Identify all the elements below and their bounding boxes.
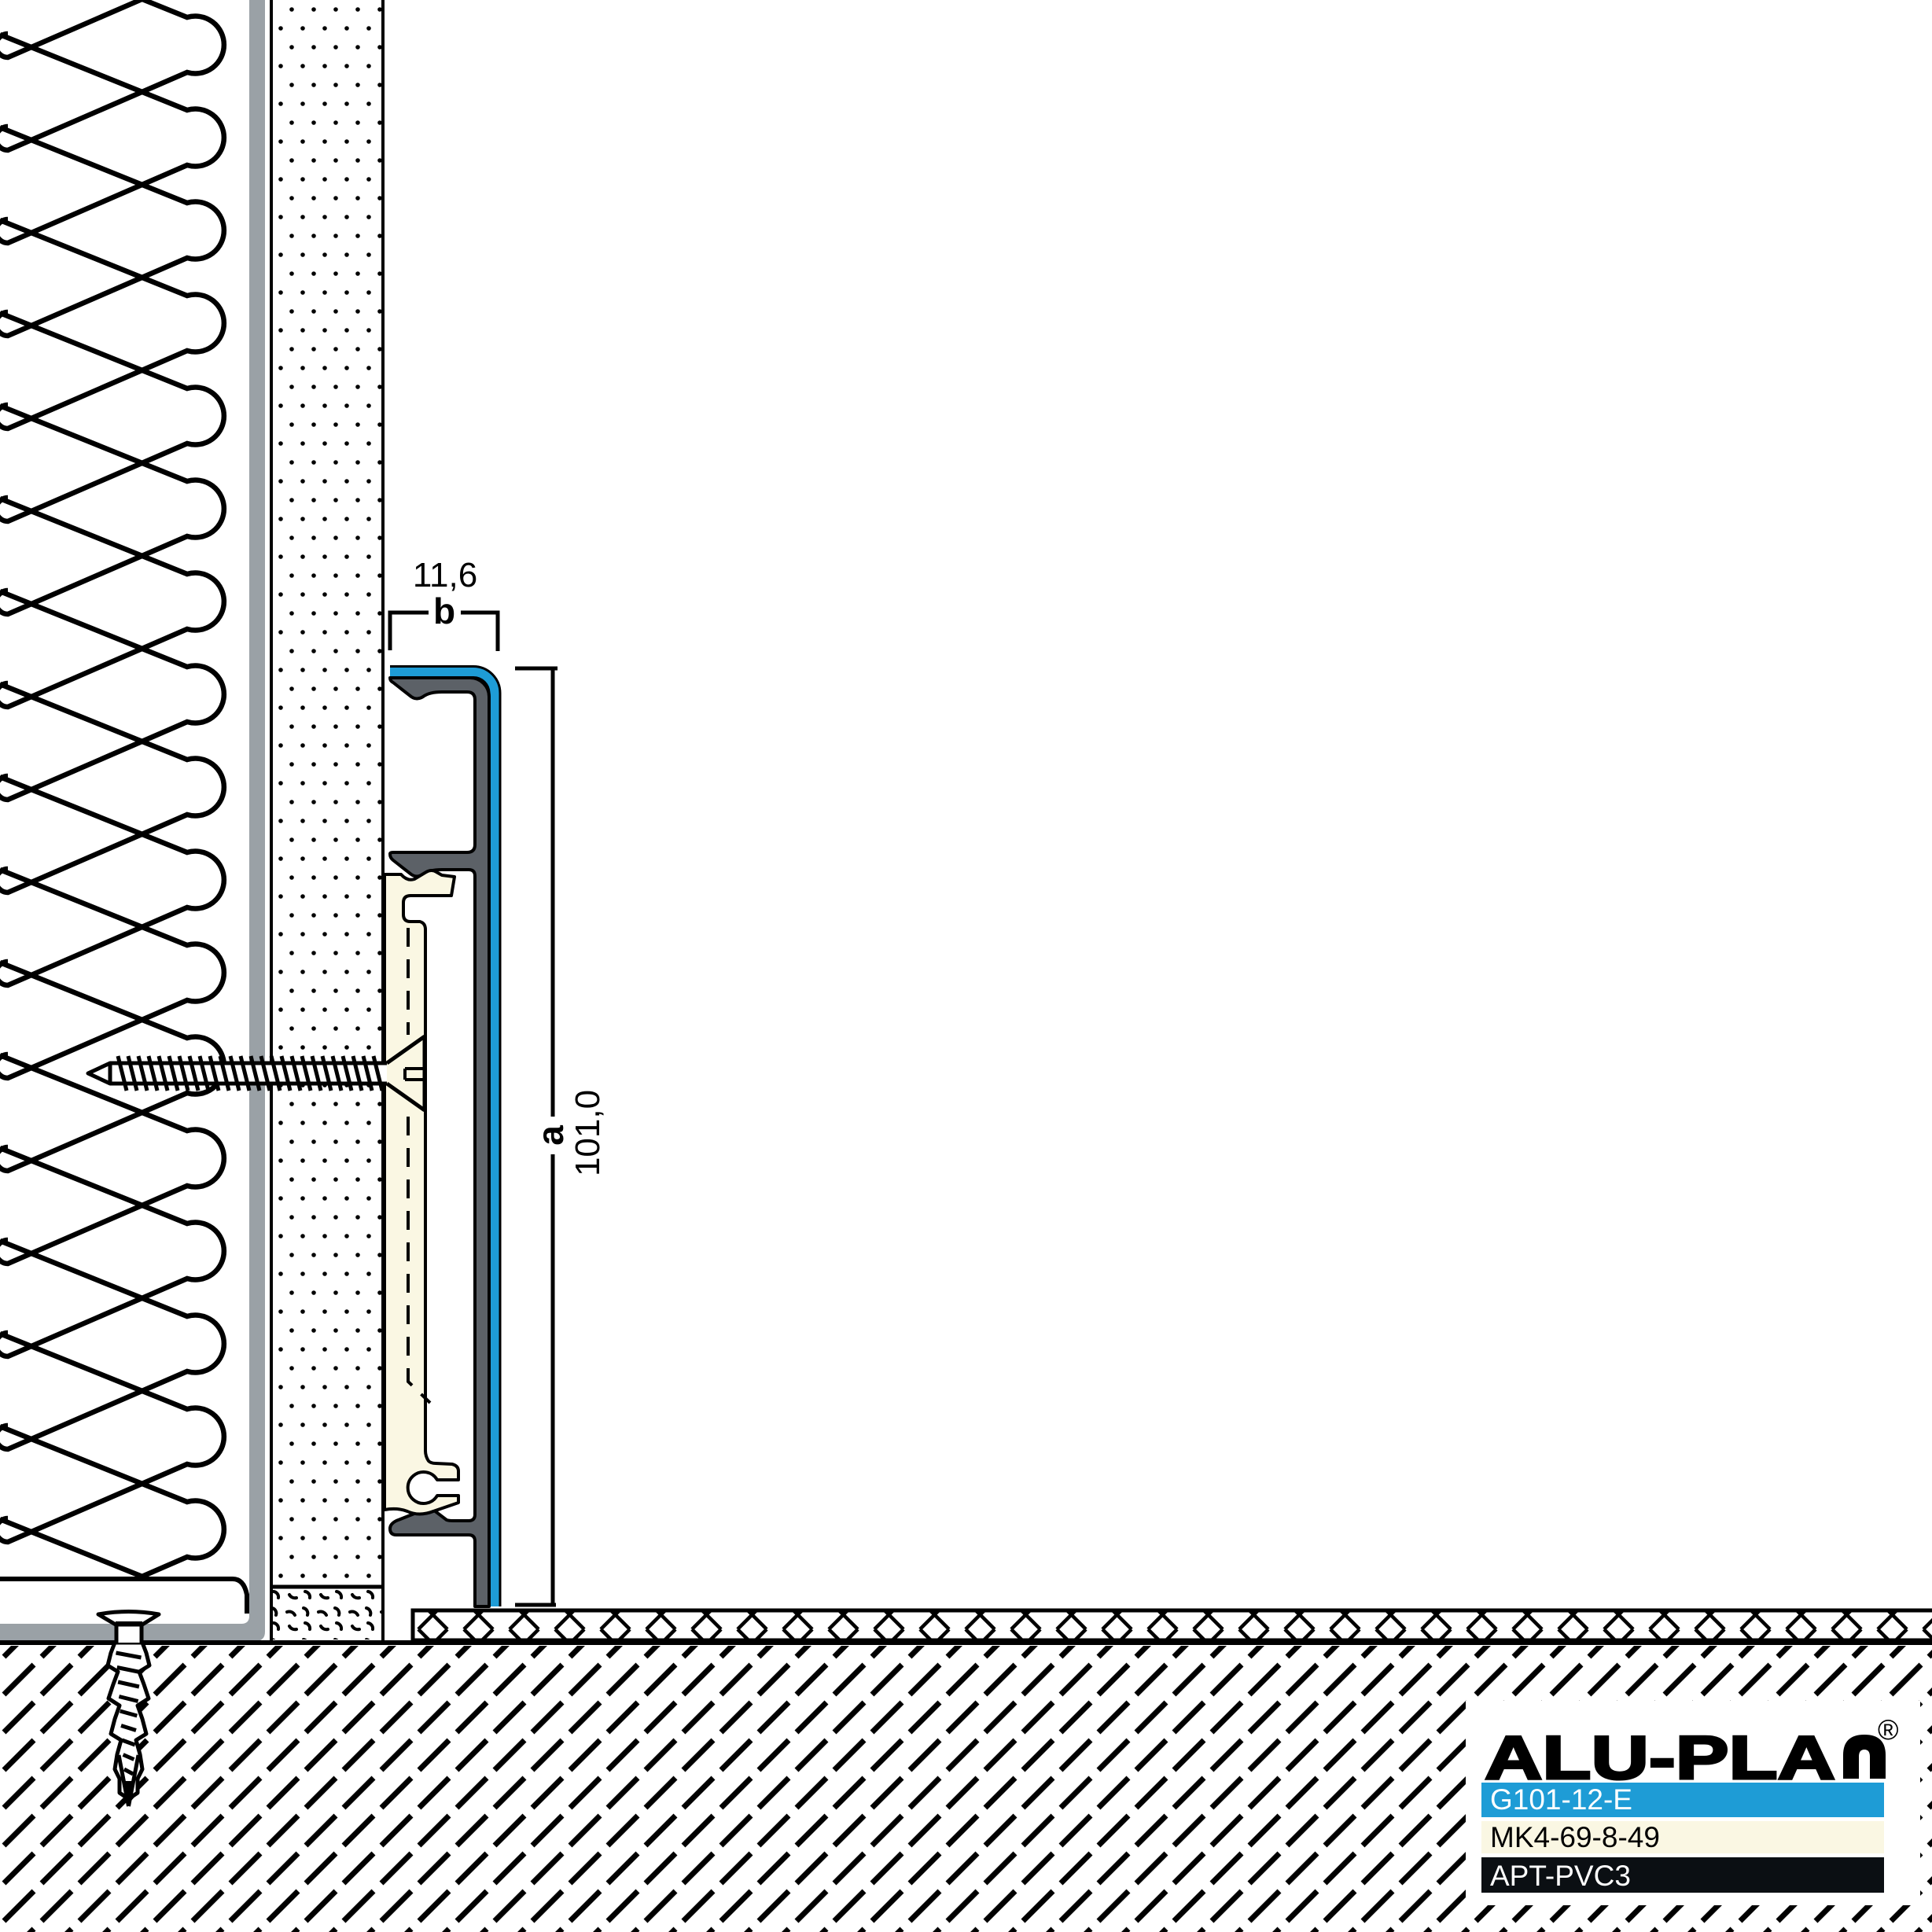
code-bar-accessory: APT-PVC3: [1481, 1857, 1884, 1893]
section-detail-drawing: 11,6 b a 101,0 ALU-PLA ® G101-12-E MK4-6…: [0, 0, 1932, 1932]
dim-height-label: a: [530, 1125, 571, 1146]
adhesive-bed: [273, 1589, 381, 1639]
brand-wordmark: ALU-PLA: [1485, 1723, 1835, 1792]
plasterboard-layer: [271, 0, 383, 1641]
dim-width-label: b: [433, 591, 455, 631]
code-bar-profile: G101-12-E: [1481, 1783, 1884, 1817]
technical-drawing-page: 11,6 b a 101,0 ALU-PLA ® G101-12-E MK4-6…: [0, 0, 1932, 1932]
floor-covering: [413, 1610, 1932, 1640]
title-block: ALU-PLA ® G101-12-E MK4-69-8-49 APT-PVC3: [1466, 1701, 1920, 1905]
code-bar-accessory-text: APT-PVC3: [1490, 1860, 1631, 1892]
code-bar-dimension: MK4-69-8-49: [1481, 1821, 1884, 1853]
registered-mark-icon: ®: [1878, 1713, 1899, 1746]
dim-width-value: 11,6: [413, 556, 477, 594]
code-bar-profile-text: G101-12-E: [1490, 1783, 1632, 1816]
dim-height-value: 101,0: [569, 1090, 607, 1176]
code-bar-dimension-text: MK4-69-8-49: [1490, 1821, 1660, 1853]
